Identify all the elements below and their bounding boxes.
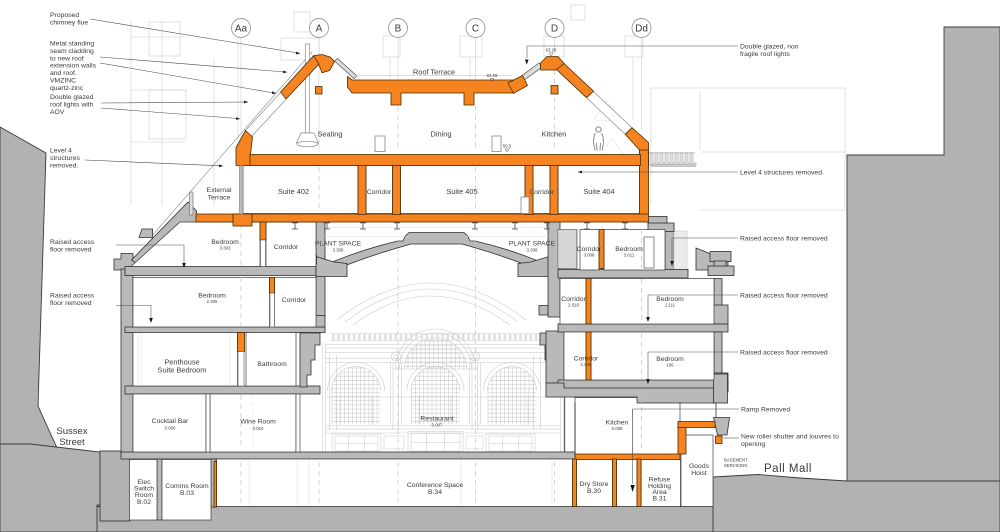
svg-text:B.34: B.34 (428, 489, 442, 496)
svg-text:0.006: 0.006 (165, 426, 176, 431)
svg-text:Terrace: Terrace (208, 194, 231, 201)
svg-text:Corridor: Corridor (367, 189, 392, 196)
svg-text:A: A (316, 24, 323, 35)
svg-text:B.02: B.02 (137, 499, 151, 506)
svg-text:Dd: Dd (635, 24, 648, 35)
svg-text:B.30: B.30 (587, 488, 601, 495)
svg-text:extension walls: extension walls (50, 63, 97, 70)
svg-text:Dining: Dining (431, 130, 452, 139)
svg-text:0.010: 0.010 (253, 426, 264, 431)
svg-text:External: External (207, 187, 232, 194)
svg-text:Suite 405: Suite 405 (446, 187, 477, 196)
svg-text:63.69: 63.69 (487, 73, 498, 78)
svg-text:AOV: AOV (50, 109, 65, 116)
svg-text:VMZINC: VMZINC (50, 78, 76, 85)
svg-text:Restaurant: Restaurant (420, 416, 453, 423)
svg-text:seam cladding: seam cladding (50, 48, 94, 55)
svg-text:Suite 404: Suite 404 (583, 187, 614, 196)
svg-text:quartz-zinc: quartz-zinc (50, 85, 84, 92)
svg-text:removed.: removed. (50, 162, 78, 169)
svg-text:to new roof: to new roof (50, 55, 84, 62)
svg-text:Raised access: Raised access (50, 239, 95, 246)
svg-text:3.308: 3.308 (527, 248, 538, 253)
svg-text:Double glazed: Double glazed (50, 94, 94, 101)
svg-text:C: C (472, 24, 479, 35)
svg-text:Corridor: Corridor (529, 189, 554, 196)
svg-text:B: B (395, 24, 402, 35)
svg-text:Suite Bedroom: Suite Bedroom (158, 366, 207, 375)
svg-text:0.008: 0.008 (612, 426, 623, 431)
svg-text:opening: opening (741, 441, 765, 448)
svg-text:Corridor: Corridor (274, 244, 299, 251)
svg-text:Street: Street (59, 437, 85, 448)
svg-text:floor removed: floor removed (50, 246, 92, 253)
svg-text:Raised access floor removed: Raised access floor removed (740, 293, 828, 300)
svg-text:Aa: Aa (235, 24, 248, 35)
svg-text:3.303: 3.303 (220, 246, 231, 251)
svg-text:PLANT SPACE: PLANT SPACE (509, 241, 556, 248)
svg-text:PLANT SPACE: PLANT SPACE (315, 241, 362, 248)
svg-text:Hoist: Hoist (691, 470, 707, 477)
svg-text:2.111: 2.111 (665, 303, 676, 308)
svg-text:106: 106 (666, 363, 674, 368)
svg-text:Conference Space: Conference Space (407, 482, 464, 489)
svg-text:chimney flue: chimney flue (50, 19, 88, 26)
svg-text:Sussex: Sussex (56, 426, 87, 437)
svg-text:Level 4: Level 4 (50, 148, 72, 155)
svg-text:63.28: 63.28 (546, 48, 557, 53)
svg-text:2.305: 2.305 (207, 299, 218, 304)
svg-text:B.31: B.31 (653, 495, 667, 502)
svg-text:Pall Mall: Pall Mall (764, 463, 812, 475)
svg-text:roof lights with: roof lights with (50, 101, 94, 108)
svg-text:0.007: 0.007 (432, 423, 443, 428)
svg-text:Kitchen: Kitchen (542, 130, 567, 139)
svg-text:structures: structures (50, 155, 80, 162)
svg-text:Cocktail Bar: Cocktail Bar (152, 418, 189, 425)
svg-text:SERVICING: SERVICING (724, 463, 748, 468)
svg-text:Ramp Removed: Ramp Removed (741, 407, 790, 414)
svg-text:Goods: Goods (689, 463, 710, 470)
svg-text:Roof Terrace: Roof Terrace (413, 68, 455, 77)
svg-text:Suite 402: Suite 402 (278, 187, 309, 196)
svg-text:Level 4 structures removed.: Level 4 structures removed. (740, 170, 824, 177)
svg-text:fragile roof lights: fragile roof lights (740, 51, 790, 58)
svg-text:New roller shutter and louvres: New roller shutter and louvres to (741, 434, 839, 441)
svg-text:Double glazed, non: Double glazed, non (740, 44, 799, 51)
svg-text:Proposed: Proposed (50, 12, 79, 19)
svg-text:Wine Room: Wine Room (240, 419, 276, 426)
svg-text:Corridor: Corridor (282, 297, 307, 304)
svg-text:1.006: 1.006 (581, 362, 592, 367)
svg-text:and roof.: and roof. (50, 70, 77, 77)
svg-text:D: D (551, 24, 558, 35)
svg-text:3.011: 3.011 (624, 253, 635, 258)
svg-text:BASEMENT: BASEMENT (724, 458, 748, 463)
svg-text:Raised access floor removed: Raised access floor removed (740, 236, 828, 243)
svg-text:Bathroom: Bathroom (257, 361, 287, 368)
svg-text:2.018: 2.018 (568, 303, 579, 308)
svg-text:B.03: B.03 (180, 490, 194, 497)
svg-text:59.5: 59.5 (503, 144, 512, 149)
svg-text:floor removed: floor removed (50, 300, 92, 307)
svg-text:3.308: 3.308 (333, 248, 344, 253)
svg-text:3.008: 3.008 (584, 253, 595, 258)
svg-text:Seating: Seating (317, 130, 342, 139)
svg-text:Metal standing: Metal standing (50, 41, 94, 48)
svg-text:Raised access: Raised access (50, 293, 95, 300)
svg-text:Raised access floor removed: Raised access floor removed (740, 350, 828, 357)
